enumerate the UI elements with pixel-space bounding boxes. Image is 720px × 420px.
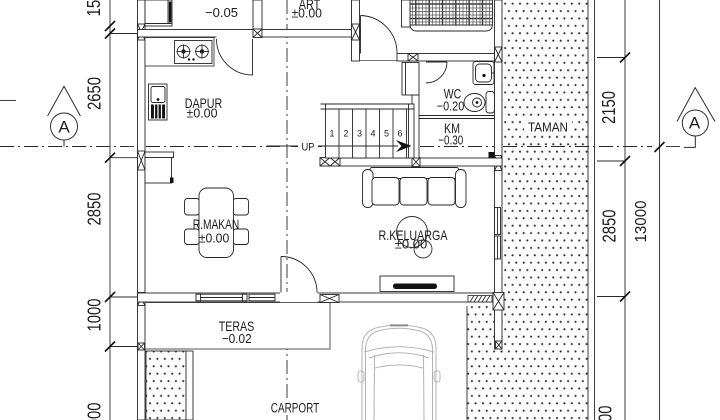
svg-text:±0.00: ±0.00 — [199, 231, 230, 246]
svg-text:CARPORT: CARPORT — [271, 401, 320, 416]
svg-text:−0.30: −0.30 — [438, 132, 463, 147]
svg-text:4: 4 — [370, 129, 375, 139]
svg-text:2150: 2150 — [599, 91, 619, 124]
svg-text:1: 1 — [329, 129, 334, 139]
svg-text:2850: 2850 — [85, 193, 105, 226]
svg-text:±0.00: ±0.00 — [291, 6, 322, 21]
svg-text:13000: 13000 — [633, 200, 650, 242]
svg-text:2650: 2650 — [85, 77, 105, 110]
svg-text:150: 150 — [84, 0, 104, 17]
svg-text:1400: 1400 — [596, 406, 616, 420]
svg-text:A: A — [58, 118, 70, 137]
svg-text:5: 5 — [384, 129, 389, 139]
svg-text:TAMAN: TAMAN — [528, 120, 568, 135]
svg-text:UP: UP — [302, 142, 315, 154]
svg-text:±0.00: ±0.00 — [187, 106, 218, 121]
svg-text:2: 2 — [343, 129, 348, 139]
svg-text:2850: 2850 — [600, 210, 620, 243]
svg-text:1000: 1000 — [85, 299, 105, 332]
svg-text:±0.00: ±0.00 — [395, 237, 428, 252]
svg-text:−0.02: −0.02 — [222, 331, 252, 346]
svg-text:−0.05: −0.05 — [205, 5, 238, 20]
svg-text:−0.20: −0.20 — [437, 99, 465, 114]
svg-text:A: A — [689, 114, 701, 133]
svg-text:3000: 3000 — [85, 403, 105, 420]
svg-text:3: 3 — [357, 129, 362, 139]
svg-text:6: 6 — [397, 129, 402, 139]
